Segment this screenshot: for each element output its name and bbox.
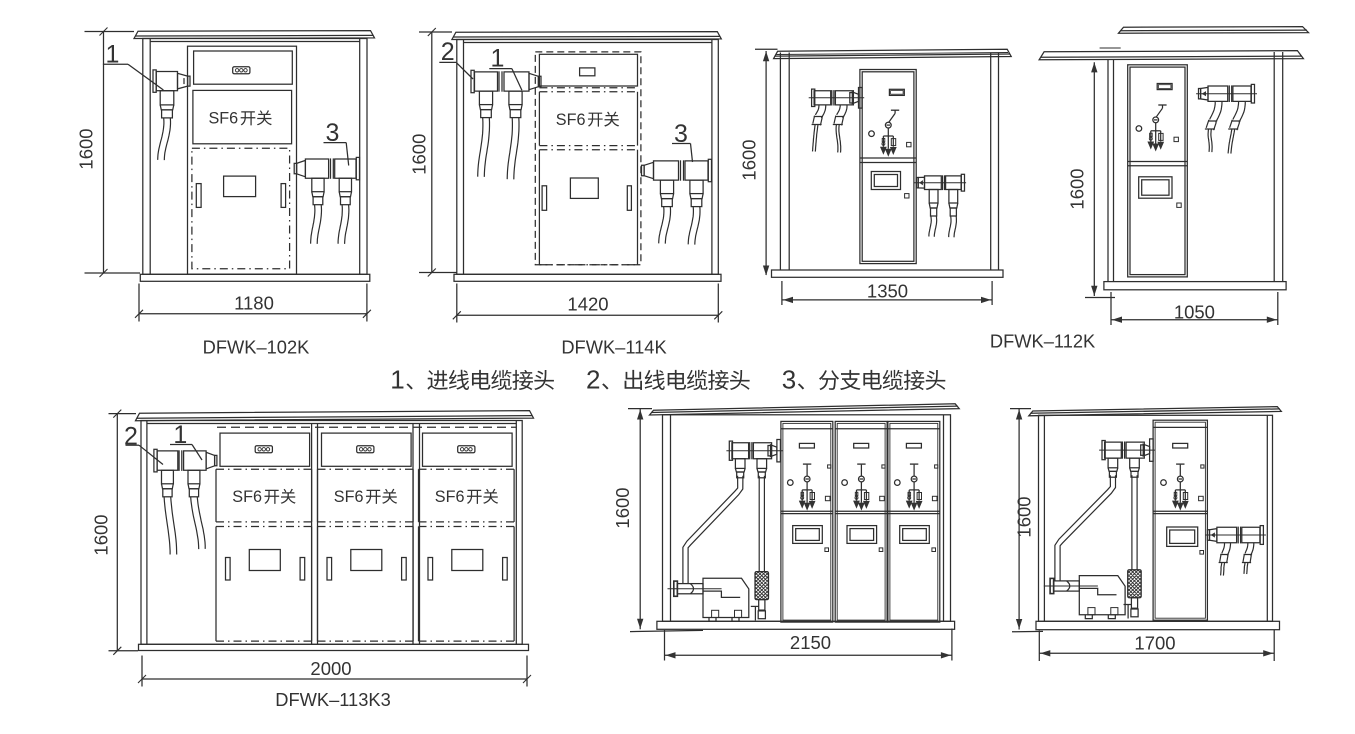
svg-text:2150: 2150 — [790, 632, 831, 653]
svg-text:1600: 1600 — [1067, 168, 1088, 209]
svg-text:SF6: SF6 — [334, 488, 364, 506]
svg-text:DFWK–113K3: DFWK–113K3 — [275, 689, 391, 710]
svg-text:1050: 1050 — [1174, 301, 1215, 322]
svg-text:DFWK–112K: DFWK–112K — [990, 331, 1095, 352]
svg-text:2000: 2000 — [310, 658, 351, 679]
svg-text:1: 1 — [390, 365, 404, 395]
svg-text:1700: 1700 — [1134, 632, 1175, 653]
svg-text:1600: 1600 — [612, 487, 633, 528]
svg-text:2: 2 — [586, 365, 600, 395]
svg-text:1600: 1600 — [1014, 496, 1035, 537]
svg-text:1600: 1600 — [739, 139, 760, 180]
svg-text:1420: 1420 — [567, 294, 608, 315]
svg-text:1180: 1180 — [234, 293, 274, 314]
svg-text:SF6: SF6 — [435, 488, 465, 506]
svg-text:SF6: SF6 — [556, 111, 586, 129]
svg-text:1350: 1350 — [867, 281, 908, 302]
svg-text:3: 3 — [782, 365, 796, 395]
svg-text:DFWK–102K: DFWK–102K — [203, 337, 310, 358]
svg-text:SF6: SF6 — [232, 488, 262, 506]
svg-text:2: 2 — [124, 422, 138, 450]
svg-text:1600: 1600 — [408, 134, 429, 175]
svg-text:DFWK–114K: DFWK–114K — [561, 337, 666, 358]
svg-text:1600: 1600 — [76, 128, 97, 169]
svg-text:SF6: SF6 — [209, 110, 239, 128]
svg-text:1600: 1600 — [91, 514, 112, 555]
